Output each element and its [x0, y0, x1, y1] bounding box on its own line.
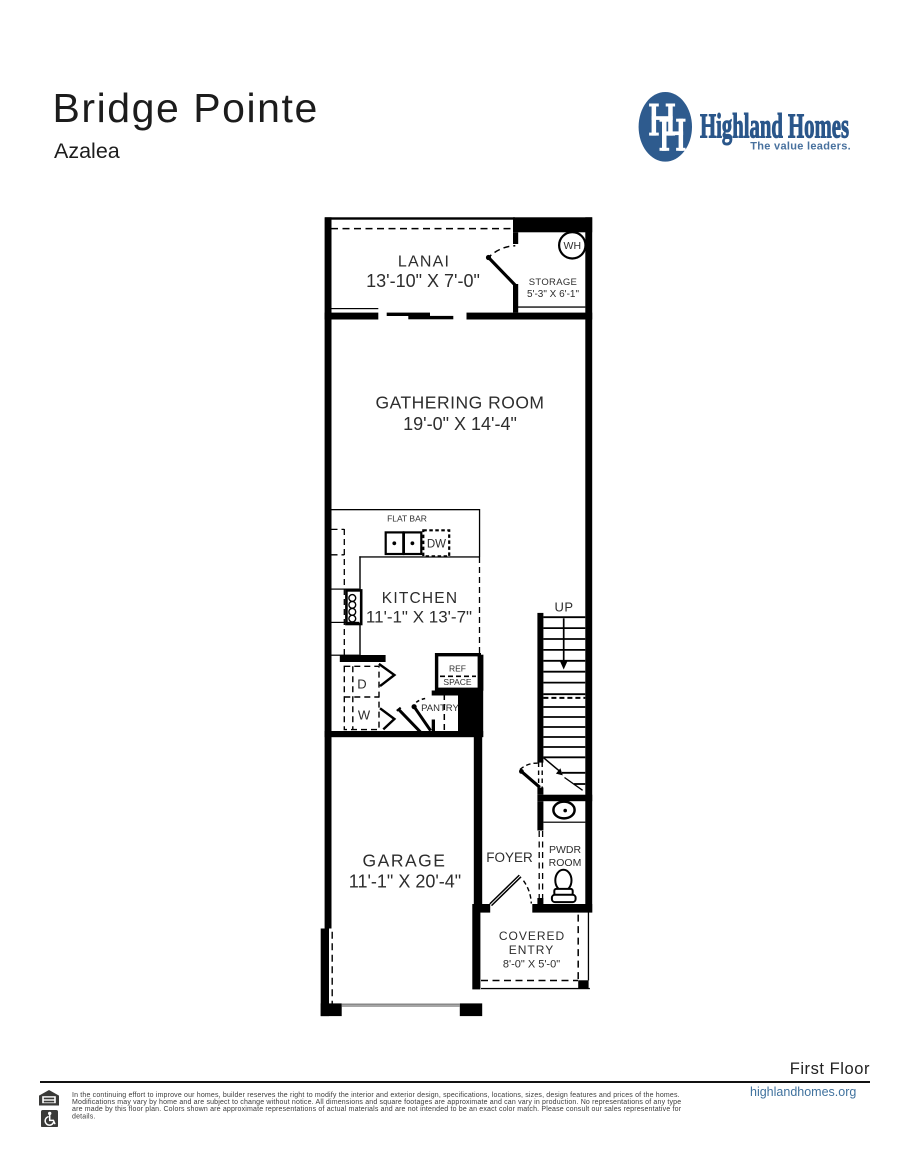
svg-text:GARAGE: GARAGE	[363, 851, 447, 871]
svg-text:W: W	[358, 708, 371, 723]
svg-text:LANAI: LANAI	[398, 254, 450, 271]
svg-text:REF: REF	[449, 664, 466, 674]
svg-text:PWDR: PWDR	[549, 844, 581, 856]
svg-text:UP: UP	[554, 600, 573, 615]
svg-text:19'-0" X 14'-4": 19'-0" X 14'-4"	[403, 414, 517, 434]
svg-text:FOYER: FOYER	[486, 850, 533, 865]
svg-text:11'-1" X 13'-7": 11'-1" X 13'-7"	[366, 608, 472, 627]
svg-text:ROOM: ROOM	[549, 857, 582, 869]
svg-text:5'-3" X 6'-1": 5'-3" X 6'-1"	[527, 289, 580, 300]
svg-text:DW: DW	[427, 539, 446, 551]
svg-text:13'-10" X 7'-0": 13'-10" X 7'-0"	[366, 271, 480, 291]
svg-text:PANTRY: PANTRY	[421, 703, 459, 714]
svg-text:ENTRY: ENTRY	[509, 943, 554, 957]
svg-text:8'-0" X 5'-0": 8'-0" X 5'-0"	[503, 959, 560, 971]
svg-text:GATHERING ROOM: GATHERING ROOM	[375, 393, 544, 413]
svg-text:STORAGE: STORAGE	[529, 277, 577, 288]
svg-text:WH: WH	[564, 240, 582, 252]
svg-text:KITCHEN: KITCHEN	[382, 590, 458, 607]
svg-text:11'-1" X 20'-4": 11'-1" X 20'-4"	[349, 872, 461, 892]
svg-text:FLAT BAR: FLAT BAR	[387, 514, 427, 524]
svg-text:SPACE: SPACE	[443, 677, 472, 687]
svg-text:D: D	[357, 677, 366, 692]
svg-text:COVERED: COVERED	[499, 929, 565, 943]
